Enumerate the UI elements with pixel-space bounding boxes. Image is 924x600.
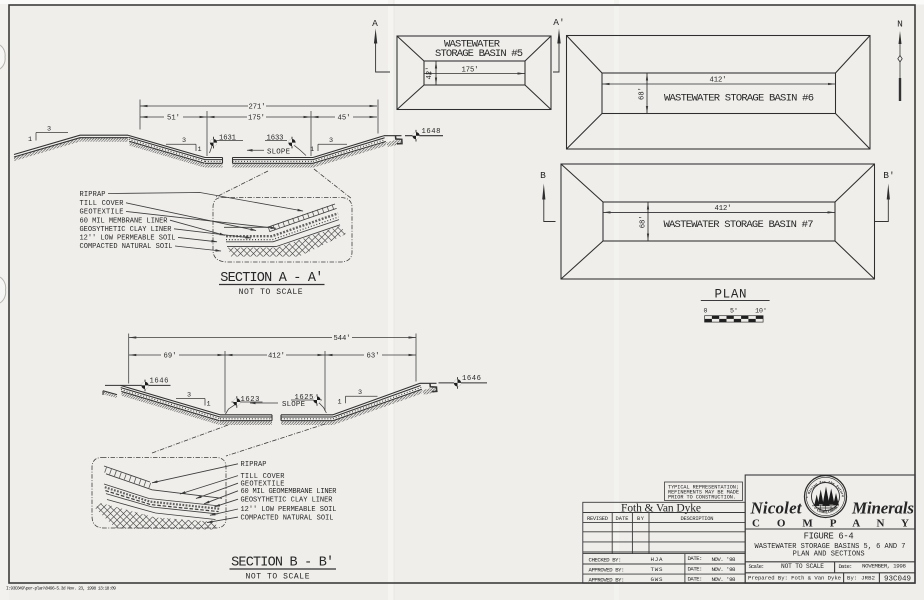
svg-text:412': 412' — [268, 352, 285, 360]
svg-text:Minerals: Minerals — [851, 499, 914, 518]
svg-text:NOV. '98: NOV. '98 — [712, 556, 737, 563]
svg-text:A: A — [372, 18, 378, 29]
svg-text:Prepared By: Foth & Van Dyke: Prepared By: Foth & Van Dyke — [748, 575, 841, 582]
svg-text:271': 271' — [249, 103, 266, 111]
svg-text:NOT TO SCALE: NOT TO SCALE — [246, 573, 310, 582]
svg-text:SECTION A - A': SECTION A - A' — [220, 271, 323, 286]
svg-text:3: 3 — [187, 391, 191, 399]
svg-text:60 MIL GEOMEMBRANE LINER: 60 MIL GEOMEMBRANE LINER — [241, 488, 338, 496]
svg-text:BY: BY — [637, 516, 645, 522]
svg-text:12'' LOW PERMEABLE SOIL: 12'' LOW PERMEABLE SOIL — [80, 235, 176, 243]
svg-text:COMPACTED NATURAL SOIL: COMPACTED NATURAL SOIL — [80, 243, 173, 251]
svg-text:1646: 1646 — [150, 377, 169, 385]
svg-text:COMPACTED NATURAL SOIL: COMPACTED NATURAL SOIL — [241, 514, 334, 522]
svg-text:69': 69' — [164, 352, 177, 360]
svg-text:NOVEMBER, 1998: NOVEMBER, 1998 — [862, 563, 907, 570]
svg-text:REVISED: REVISED — [587, 516, 608, 522]
svg-text:N: N — [897, 19, 903, 30]
svg-text:DATE: DATE — [616, 516, 629, 522]
svg-text:42': 42' — [426, 67, 434, 80]
svg-text:1646: 1646 — [462, 375, 481, 383]
svg-text:5': 5' — [730, 308, 738, 315]
svg-text:DATE:: DATE: — [688, 555, 703, 562]
svg-text:GWS: GWS — [651, 576, 664, 583]
svg-text:412': 412' — [710, 77, 727, 85]
svg-text:DESCRIPTION: DESCRIPTION — [681, 516, 714, 522]
svg-text:NOV. '98: NOV. '98 — [712, 566, 737, 573]
svg-text:SLOPE: SLOPE — [282, 401, 306, 409]
svg-text:SLOPE: SLOPE — [267, 148, 291, 156]
svg-text:By: JRB2: By: JRB2 — [847, 575, 875, 582]
svg-text:NOT TO SCALE: NOT TO SCALE — [239, 288, 303, 297]
svg-text:B': B' — [883, 170, 894, 181]
svg-text:3: 3 — [47, 125, 51, 133]
svg-text:60 MIL MEMBRANE LINER: 60 MIL MEMBRANE LINER — [80, 217, 169, 225]
svg-text:12'' LOW PERMEABLE SOIL: 12'' LOW PERMEABLE SOIL — [241, 506, 337, 514]
svg-text:63': 63' — [367, 352, 380, 360]
svg-text:FIGURE 6-4: FIGURE 6-4 — [804, 531, 854, 541]
svg-text:STORAGE BASIN #5: STORAGE BASIN #5 — [435, 48, 523, 60]
svg-text:RIPRAP: RIPRAP — [80, 191, 106, 199]
svg-text:1633: 1633 — [267, 134, 284, 142]
svg-text:PLAN: PLAN — [715, 288, 747, 302]
svg-text:NOV. '98: NOV. '98 — [712, 576, 737, 583]
svg-text:175': 175' — [462, 66, 479, 74]
svg-text:WASTEWATER STORAGE BASIN #7: WASTEWATER STORAGE BASIN #7 — [664, 219, 814, 231]
svg-text:TWS: TWS — [651, 566, 664, 573]
svg-text:SECTION B - B': SECTION B - B' — [231, 555, 334, 570]
svg-text:B: B — [540, 170, 546, 181]
svg-text:10': 10' — [755, 308, 767, 315]
svg-text:3: 3 — [182, 137, 186, 145]
svg-text:544': 544' — [334, 335, 351, 343]
svg-text:1: 1 — [206, 401, 210, 409]
svg-text:1623: 1623 — [241, 396, 260, 404]
svg-text:0: 0 — [704, 308, 708, 315]
svg-text:3: 3 — [329, 137, 333, 145]
svg-text:GEOSYTHETIC CLAY LINER: GEOSYTHETIC CLAY LINER — [80, 226, 173, 234]
svg-text:GEOTEXTILE: GEOTEXTILE — [80, 209, 124, 217]
svg-text:HJA: HJA — [651, 556, 664, 563]
svg-text:NOT TO SCALE: NOT TO SCALE — [781, 563, 824, 570]
svg-text:1: 1 — [310, 146, 314, 154]
svg-text:DATE:: DATE: — [688, 575, 703, 582]
svg-text:PRIOR TO CONSTRUCTION.: PRIOR TO CONSTRUCTION. — [668, 494, 736, 500]
svg-text:Scale:: Scale: — [749, 563, 765, 570]
svg-text:175': 175' — [248, 114, 265, 122]
svg-text:93C049: 93C049 — [884, 575, 911, 583]
svg-text:Date:: Date: — [839, 563, 853, 570]
svg-text:1: 1 — [337, 398, 341, 406]
svg-text:68': 68' — [640, 215, 648, 228]
svg-text:412': 412' — [715, 205, 732, 213]
svg-text:TILL COVER: TILL COVER — [80, 200, 125, 208]
svg-text:3: 3 — [358, 389, 362, 397]
svg-text:I:93C049\per-plan\0496-5.3d N: I:93C049\per-plan\0496-5.3d Nov. 23, 199… — [6, 586, 116, 592]
svg-text:APPROVED BY:: APPROVED BY: — [589, 566, 625, 573]
svg-text:APPROVED BY:: APPROVED BY: — [589, 576, 625, 583]
svg-text:51': 51' — [167, 114, 180, 122]
svg-text:PLAN AND SECTIONS: PLAN AND SECTIONS — [793, 551, 865, 559]
svg-text:Nicolet: Nicolet — [750, 499, 803, 518]
svg-text:CHECKED BY:: CHECKED BY: — [589, 556, 622, 563]
svg-text:1: 1 — [197, 146, 201, 154]
svg-text:RIPRAP: RIPRAP — [241, 461, 267, 469]
svg-text:WASTEWATER STORAGE BASIN #6: WASTEWATER STORAGE BASIN #6 — [664, 92, 814, 104]
svg-text:1631: 1631 — [219, 134, 236, 142]
svg-text:A': A' — [553, 17, 564, 28]
svg-text:68': 68' — [639, 87, 647, 100]
svg-text:GEOSYTHETIC CLAY LINER: GEOSYTHETIC CLAY LINER — [241, 496, 334, 504]
svg-text:1648: 1648 — [422, 128, 441, 136]
svg-text:45': 45' — [338, 114, 351, 122]
svg-text:1: 1 — [28, 136, 32, 144]
svg-text:DATE:: DATE: — [688, 565, 703, 572]
